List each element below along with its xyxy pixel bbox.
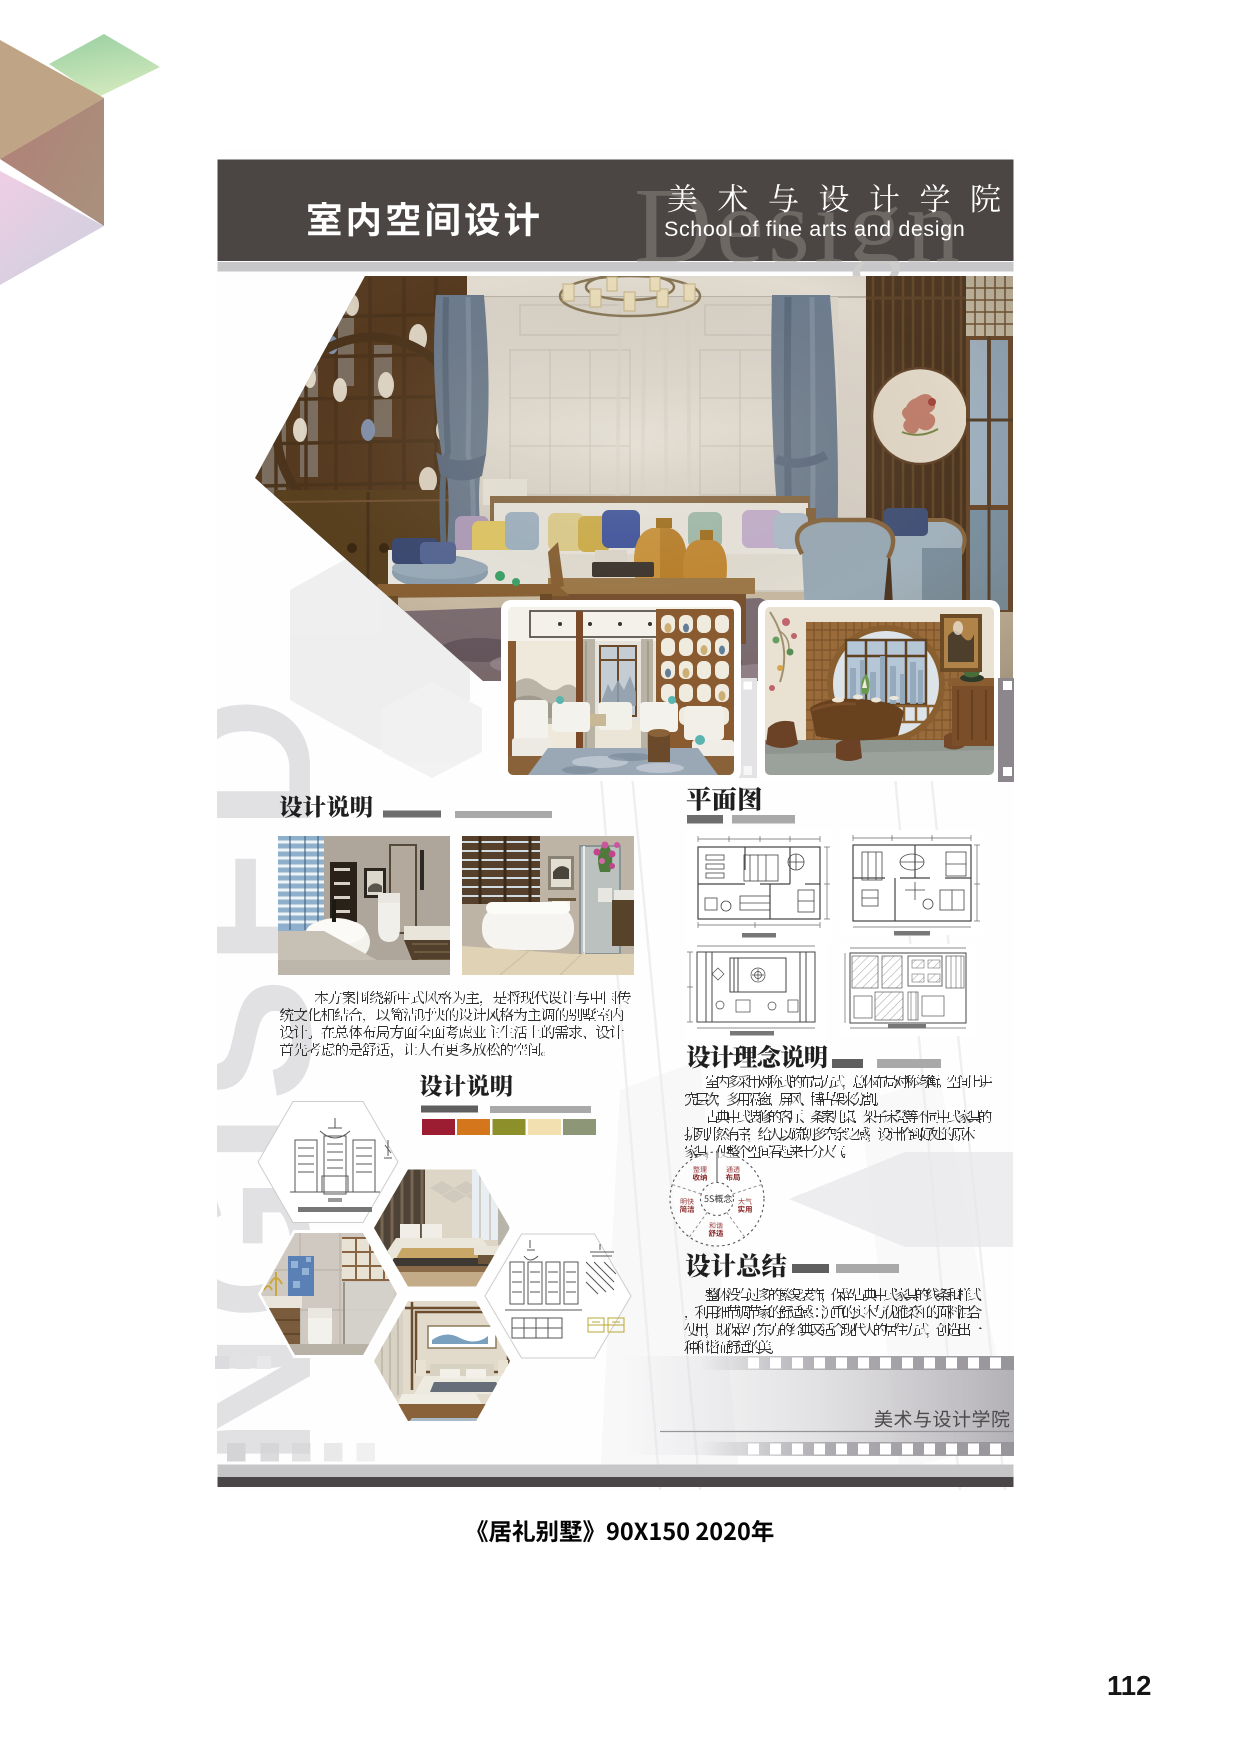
svg-text:112: 112: [1107, 1670, 1151, 1701]
svg-text:School of fine arts and design: School of fine arts and design: [664, 217, 965, 241]
